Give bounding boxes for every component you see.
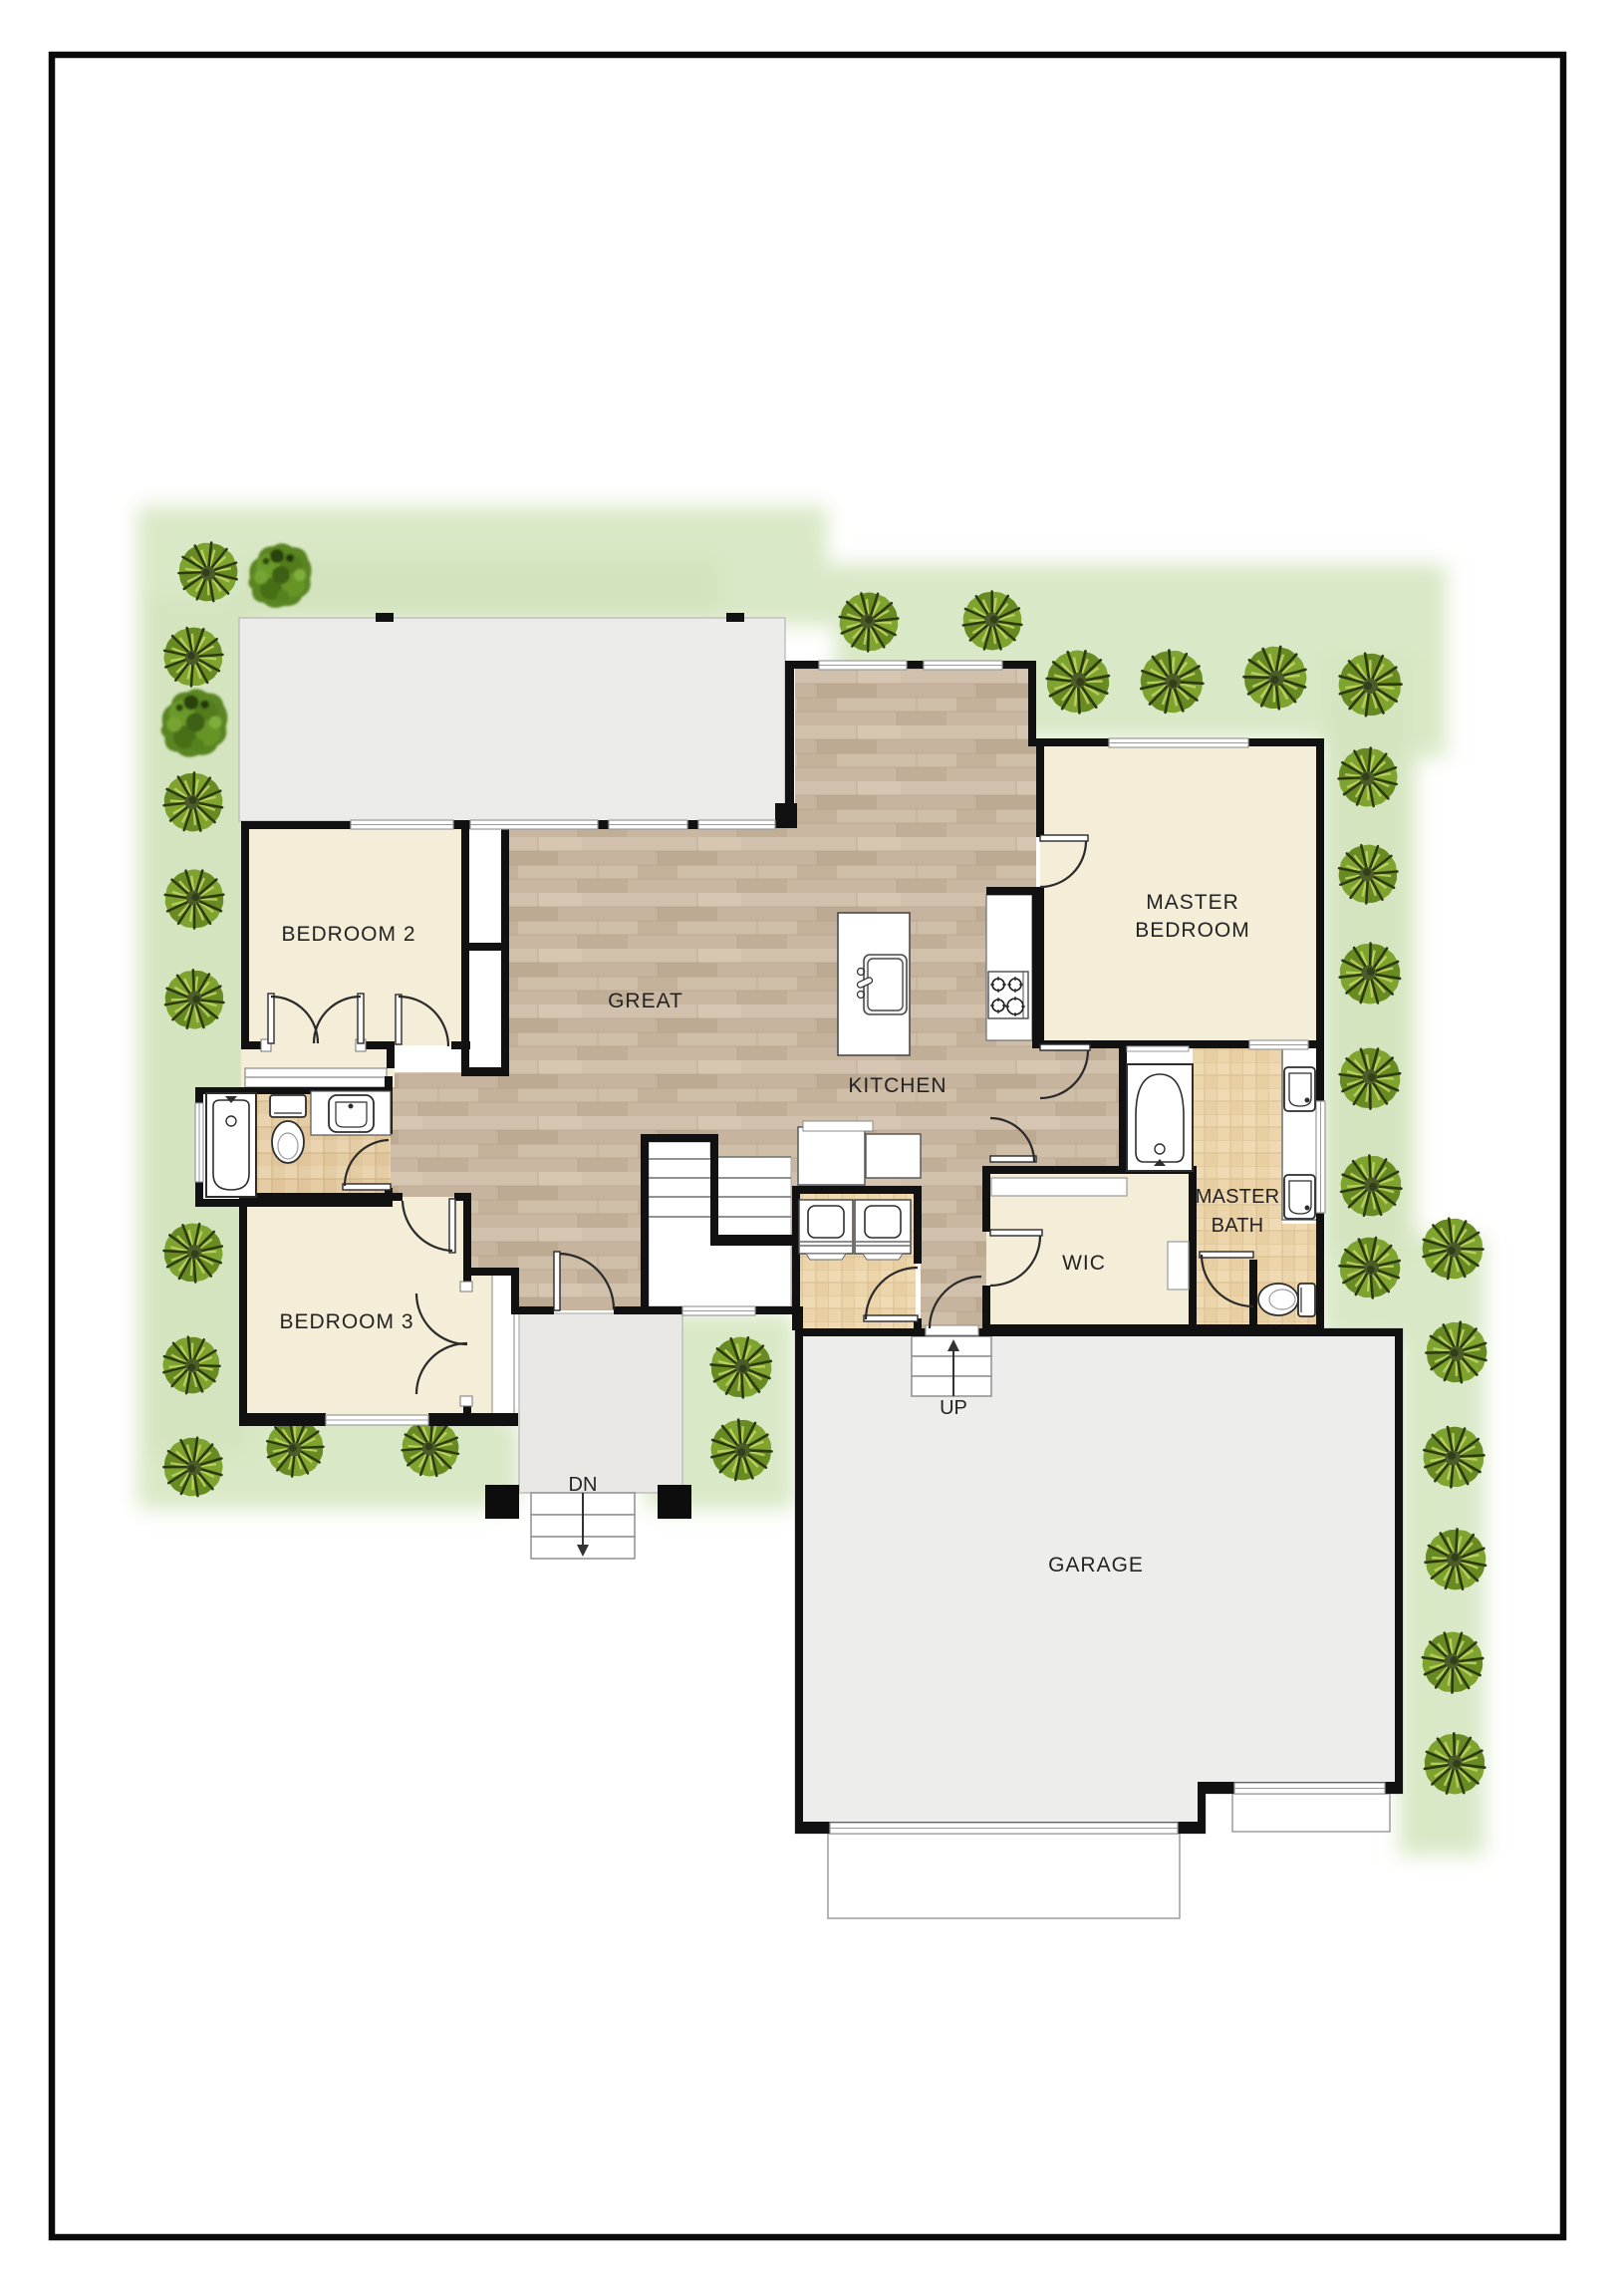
svg-text:MASTER: MASTER <box>1146 891 1239 914</box>
svg-text:GREAT: GREAT <box>608 990 683 1012</box>
svg-text:DN: DN <box>569 1474 598 1496</box>
svg-text:BEDROOM 3: BEDROOM 3 <box>279 1310 413 1333</box>
svg-text:MASTER: MASTER <box>1196 1186 1280 1208</box>
svg-text:BEDROOM 2: BEDROOM 2 <box>281 923 415 946</box>
svg-text:WIC: WIC <box>1062 1252 1106 1275</box>
svg-text:BATH: BATH <box>1212 1215 1264 1237</box>
svg-text:BEDROOM: BEDROOM <box>1135 919 1250 942</box>
svg-text:KITCHEN: KITCHEN <box>848 1074 946 1097</box>
svg-text:UP: UP <box>940 1397 967 1419</box>
svg-text:GARAGE: GARAGE <box>1048 1554 1144 1577</box>
